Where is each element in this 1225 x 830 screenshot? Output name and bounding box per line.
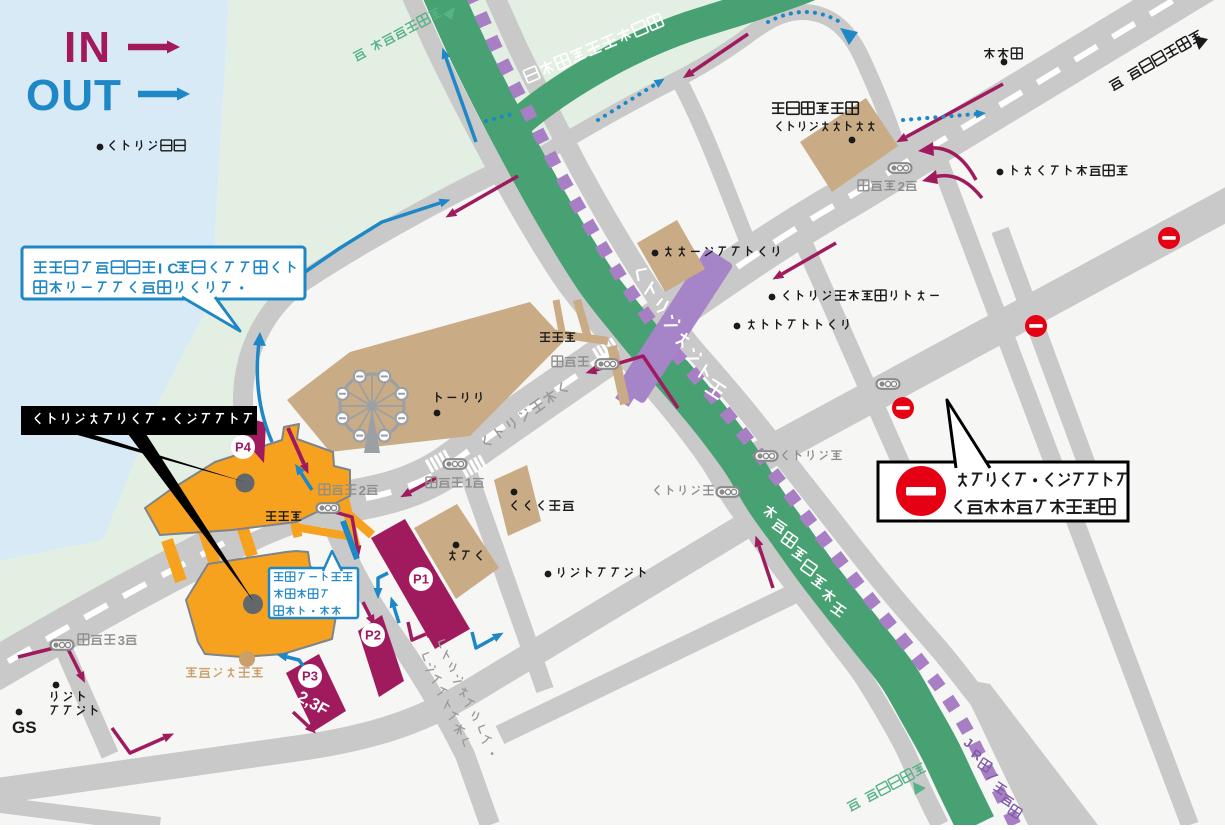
svg-text:2: 2 — [359, 483, 366, 498]
svg-text:P3: P3 — [302, 669, 318, 684]
svg-text:P4: P4 — [235, 440, 252, 455]
svg-text:C: C — [167, 261, 178, 278]
svg-text:OUT: OUT — [26, 71, 122, 120]
svg-text:3: 3 — [118, 633, 125, 648]
svg-text:P2: P2 — [365, 628, 381, 643]
svg-text:P1: P1 — [413, 572, 429, 587]
svg-text:1: 1 — [465, 476, 472, 491]
svg-text:GS: GS — [12, 718, 37, 737]
svg-text:I: I — [158, 261, 162, 278]
svg-text:IN: IN — [64, 23, 112, 72]
svg-text:2: 2 — [898, 179, 905, 194]
